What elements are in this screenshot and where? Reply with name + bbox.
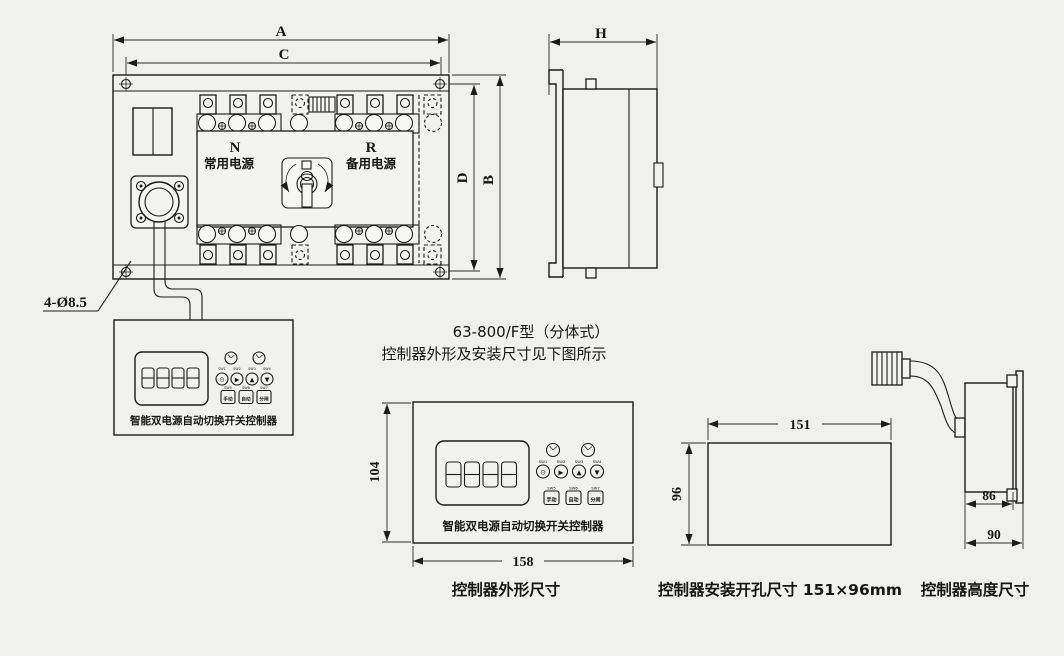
square-button-text: 分闸: [259, 396, 269, 403]
model-note-line1: 63-800/F型（分体式）: [453, 323, 610, 341]
round-button-label: SW1: [539, 459, 548, 464]
controller-name-label: 智能双电源自动切换开关控制器: [129, 414, 277, 427]
up-arrow-icon: ▲: [250, 377, 255, 384]
dim-b-label: B: [481, 175, 497, 185]
square-button-text: 自动: [568, 496, 578, 503]
r-pole-letter: R: [366, 140, 377, 156]
technical-drawing-canvas: A C: [0, 0, 1064, 656]
square-button-text: 手动: [223, 396, 233, 403]
round-button-label: SW2: [557, 459, 566, 464]
round-button-label: SW4: [263, 367, 271, 371]
outline-width-value: 158: [513, 555, 534, 570]
din-clip-icon: [654, 163, 663, 187]
side-profile: [549, 70, 663, 278]
front-panel-flange: [1016, 371, 1023, 503]
panel-clip-icon: [1007, 375, 1017, 387]
cable-entry-stub: [955, 418, 965, 437]
height-inner-value: 86: [982, 488, 996, 503]
dim-c-label: C: [279, 47, 290, 63]
n-pole-letter: N: [230, 140, 241, 156]
controller-unit: SW1 ⊙ SW2 ▶ SW3 ▲ SW4 ▼ SW5 手动 SW6 自动: [114, 320, 293, 435]
set-icon: ⊙: [219, 376, 224, 384]
round-button-label: SW3: [248, 367, 256, 371]
square-button-label: SW5: [547, 486, 556, 491]
right-arrow-icon: ▶: [559, 468, 564, 476]
round-button-label: SW4: [593, 459, 602, 464]
square-button-text: 手动: [546, 496, 556, 503]
square-button-label: SW5: [224, 386, 232, 390]
reserve-power-label: 备用电源: [345, 156, 397, 171]
square-button-label: SW7: [260, 386, 268, 390]
round-button-label: SW2: [233, 367, 241, 371]
square-button-text: 分闸: [590, 496, 600, 503]
down-arrow-icon: ▼: [595, 468, 600, 476]
height-caption: 控制器高度尺寸: [921, 580, 1030, 599]
controller-side-body: [965, 383, 1013, 492]
dim-h-label: H: [595, 26, 607, 42]
round-button-label: SW3: [575, 459, 584, 464]
controller-name-label: 智能双电源自动切换开关控制器: [443, 519, 604, 533]
right-arrow-icon: ▶: [235, 377, 240, 384]
square-button-label: SW6: [569, 486, 578, 491]
round-button-label: SW1: [218, 367, 226, 371]
cutout-caption: 控制器安装开孔尺寸 151×96mm: [658, 580, 902, 599]
square-button-label: SW6: [242, 386, 250, 390]
vent-grille: [309, 97, 335, 112]
normal-power-label: 常用电源: [204, 156, 255, 171]
cutout-width-value: 151: [790, 418, 811, 433]
height-outer-value: 90: [987, 527, 1001, 542]
down-arrow-icon: ▼: [265, 377, 270, 384]
panel-clip-icon: [1007, 489, 1017, 501]
set-icon: ⊙: [540, 468, 546, 476]
dim-a-label: A: [276, 24, 287, 40]
rotary-switch: [282, 158, 332, 208]
cutout-height-value: 96: [670, 487, 685, 501]
rotary-handle-icon: [302, 184, 312, 207]
dim-d-label: D: [455, 172, 471, 183]
square-button-label: SW7: [591, 486, 600, 491]
outline-height-value: 104: [368, 462, 383, 483]
up-arrow-icon: ▲: [577, 468, 582, 476]
model-note-line2: 控制器外形及安装尺寸见下图所示: [381, 345, 606, 363]
hole-callout-label: 4-Ø8.5: [44, 295, 87, 311]
outline-caption: 控制器外形尺寸: [452, 580, 561, 599]
square-button-text: 自动: [241, 396, 251, 403]
motor-flange: [131, 176, 188, 228]
